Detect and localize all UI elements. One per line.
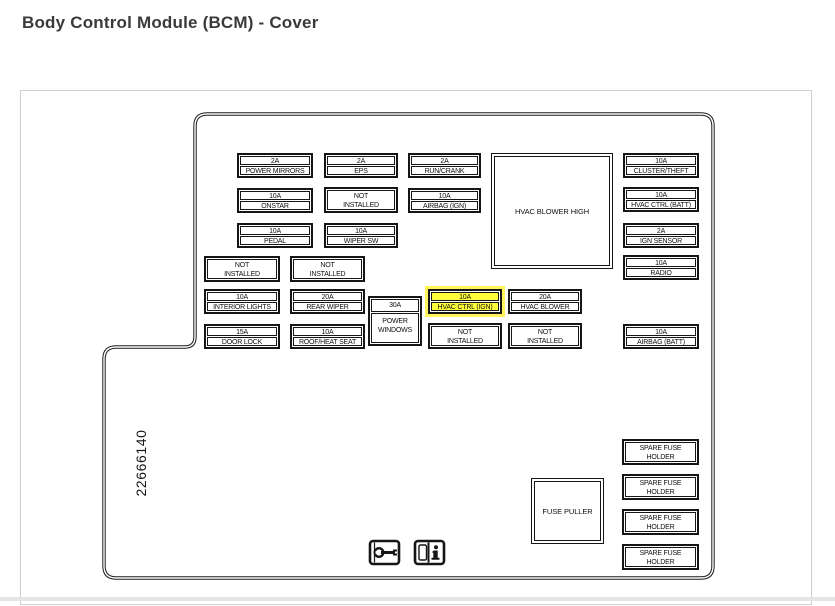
fuse-not-installed-3: NOT INSTALLED — [290, 256, 365, 282]
fuse-amp: 10A — [327, 226, 395, 235]
fuse-amp: 30A — [371, 299, 419, 312]
fuse-wiper-sw: 10A WIPER SW — [324, 223, 398, 248]
fuse-not-installed-5: NOT INSTALLED — [508, 323, 582, 349]
fuse-ign-sensor: 2A IGN SENSOR — [623, 223, 699, 248]
fuse-name: ROOF/HEAT SEAT — [293, 337, 362, 346]
fuse-run-crank: 2A RUN/CRANK — [408, 153, 481, 178]
spare-label: SPARE FUSE HOLDER — [625, 442, 696, 462]
fuse-name: AIRBAG (IGN) — [411, 201, 478, 210]
fuse-door-lock: 15A DOOR LOCK — [204, 324, 280, 349]
spare-fuse-holder-3: SPARE FUSE HOLDER — [622, 509, 699, 535]
fuse-radio: 10A RADIO — [623, 255, 699, 280]
fuse-interior-lights: 10A INTERIOR LIGHTS — [204, 289, 280, 314]
fuse-name: DOOR LOCK — [207, 337, 277, 346]
fuse-name: INTERIOR LIGHTS — [207, 302, 277, 311]
spare-label: SPARE FUSE HOLDER — [625, 477, 696, 497]
spare-fuse-holder-1: SPARE FUSE HOLDER — [622, 439, 699, 465]
fuse-amp: 10A — [626, 258, 696, 267]
fuse-amp: 10A — [626, 156, 696, 165]
fuse-name: EPS — [327, 166, 395, 175]
fuse-pedal: 10A PEDAL — [237, 223, 313, 248]
spare-fuse-holder-2: SPARE FUSE HOLDER — [622, 474, 699, 500]
fuse-amp: 2A — [626, 226, 696, 235]
fuse-airbag-batt: 10A AIRBAG (BATT) — [623, 324, 699, 349]
fuse-amp: 20A — [511, 292, 579, 301]
service-manual-wrench-icon — [368, 539, 401, 571]
fuse-airbag-ign: 10A AIRBAG (IGN) — [408, 188, 481, 213]
fuse-name: HVAC CTRL (IGN) — [431, 302, 499, 311]
fuse-name: CLUSTER/THEFT — [626, 166, 696, 175]
fuse-rear-wiper: 20A REAR WIPER — [290, 289, 365, 314]
fuse-name: REAR WIPER — [293, 302, 362, 311]
fuse-label: NOT INSTALLED — [431, 326, 499, 346]
fuse-name: RADIO — [626, 268, 696, 277]
fuse-amp: 15A — [207, 327, 277, 336]
fuse-name: HVAC CTRL (BATT) — [626, 200, 696, 209]
fuse-hvac-blower: 20A HVAC BLOWER — [508, 289, 582, 314]
fuse-name: POWER MIRRORS — [240, 166, 310, 175]
fuse-hvac-ctrl-batt: 10A HVAC CTRL (BATT) — [623, 187, 699, 212]
fuse-amp: 2A — [327, 156, 395, 165]
fuse-name: POWER WINDOWS — [371, 313, 419, 343]
fuse-label: NOT INSTALLED — [327, 190, 395, 210]
fuse-amp: 10A — [411, 191, 478, 200]
fuse-amp: 20A — [293, 292, 362, 301]
fuse-amp: 10A — [240, 191, 310, 200]
fuse-name: PEDAL — [240, 236, 310, 245]
fuse-name: IGN SENSOR — [626, 236, 696, 245]
fuse-not-installed-2: NOT INSTALLED — [204, 256, 280, 282]
fuse-amp: 10A — [431, 292, 499, 301]
fuse-name: HVAC BLOWER — [511, 302, 579, 311]
fuse-amp: 10A — [293, 327, 362, 336]
fuse-power-mirrors: 2A POWER MIRRORS — [237, 153, 313, 178]
spare-label: SPARE FUSE HOLDER — [625, 547, 696, 567]
fuse-power-windows: 30A POWER WINDOWS — [368, 296, 422, 346]
fuse-eps: 2A EPS — [324, 153, 398, 178]
fuse-not-installed-1: NOT INSTALLED — [324, 187, 398, 213]
page-bottom-divider — [0, 597, 835, 601]
fuse-roof-heat-seat: 10A ROOF/HEAT SEAT — [290, 324, 365, 349]
fuse-box-diagram-panel: 22666140 2A POWER MIRRORS 2A EPS 2A RUN/… — [20, 90, 812, 605]
fuse-name: RUN/CRANK — [411, 166, 478, 175]
hvac-blower-high-block: HVAC BLOWER HIGH — [494, 156, 610, 266]
fuse-label: NOT INSTALLED — [207, 259, 277, 279]
fuse-amp: 2A — [240, 156, 310, 165]
fuse-onstar: 10A ONSTAR — [237, 188, 313, 213]
spare-fuse-holder-4: SPARE FUSE HOLDER — [622, 544, 699, 570]
fuse-not-installed-4: NOT INSTALLED — [428, 323, 502, 349]
fuse-amp: 10A — [240, 226, 310, 235]
page-title: Body Control Module (BCM) - Cover — [22, 13, 319, 33]
fuse-puller-block: FUSE PULLER — [534, 481, 601, 541]
part-number: 22666140 — [133, 429, 149, 497]
fuse-hvac-ctrl-ign-highlighted: 10A HVAC CTRL (IGN) — [428, 289, 502, 314]
owners-manual-info-icon — [413, 539, 446, 571]
fuse-cluster-theft: 10A CLUSTER/THEFT — [623, 153, 699, 178]
fuse-name: WIPER SW — [327, 236, 395, 245]
fuse-name: AIRBAG (BATT) — [626, 337, 696, 346]
fuse-name: ONSTAR — [240, 201, 310, 210]
spare-label: SPARE FUSE HOLDER — [625, 512, 696, 532]
fuse-amp: 10A — [626, 327, 696, 336]
fuse-amp: 10A — [626, 190, 696, 199]
fuse-label: NOT INSTALLED — [511, 326, 579, 346]
fuse-amp: 10A — [207, 292, 277, 301]
fuse-amp: 2A — [411, 156, 478, 165]
fuse-label: NOT INSTALLED — [293, 259, 362, 279]
